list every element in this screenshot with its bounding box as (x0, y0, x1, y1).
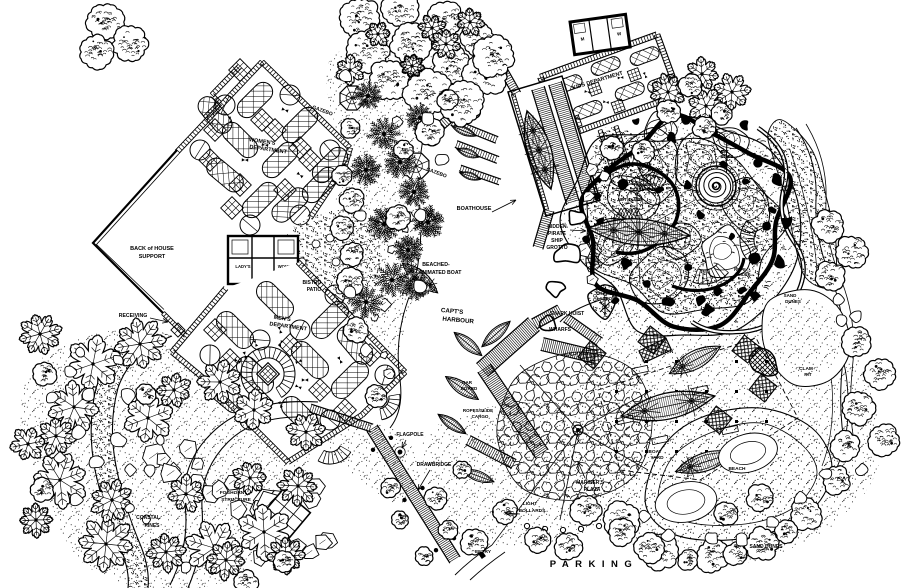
svg-text:PIRATE: PIRATE (548, 231, 567, 237)
svg-text:FOGHORN: FOGHORN (220, 490, 245, 496)
svg-text:PARKING: PARKING (550, 559, 639, 570)
svg-text:BACK of HOUSE: BACK of HOUSE (130, 246, 174, 252)
svg-text:PATIO: PATIO (307, 287, 322, 293)
svg-text:SAND: SAND (784, 293, 798, 298)
svg-text:PLAZA: PLAZA (584, 487, 601, 493)
svg-text:RECEIVING: RECEIVING (119, 313, 148, 319)
svg-text:MARINER'S: MARINER'S (576, 480, 605, 486)
svg-text:GROTTO: GROTTO (546, 245, 567, 251)
svg-text:PINES: PINES (144, 523, 160, 529)
svg-text:PIT: PIT (804, 372, 812, 378)
svg-text:SUPPORT: SUPPORT (139, 254, 166, 260)
svg-text:SLIDES: SLIDES (735, 272, 750, 277)
svg-text:NET CLIMB: NET CLIMB (618, 197, 643, 202)
svg-text:SLIDE: SLIDE (721, 154, 734, 159)
svg-text:BISTRO: BISTRO (303, 280, 322, 286)
svg-text:LADY'S: LADY'S (235, 264, 250, 269)
svg-text:CLAM: CLAM (799, 366, 813, 372)
svg-text:WHARFS: WHARFS (549, 327, 572, 333)
svg-text:LIGHT: LIGHT (523, 501, 537, 507)
svg-text:CAVE MAZE: CAVE MAZE (633, 187, 658, 192)
svg-text:SAND DUNES: SAND DUNES (749, 544, 783, 550)
svg-text:CARGO: CARGO (472, 414, 489, 419)
svg-text:HIDDEN: HIDDEN (547, 224, 567, 230)
svg-text:BOATHOUSE: BOATHOUSE (457, 206, 492, 212)
svg-text:BEACHED-: BEACHED- (422, 262, 450, 268)
svg-text:BOAT: BOAT (648, 449, 661, 455)
svg-text:BAR: BAR (663, 349, 674, 355)
svg-text:FLAGPOLE: FLAGPOLE (396, 432, 424, 438)
svg-text:ROPES/SLIDE: ROPES/SLIDE (463, 408, 493, 413)
svg-text:SHIP: SHIP (551, 238, 563, 244)
svg-text:STRUCTURE: STRUCTURE (221, 497, 251, 503)
svg-text:ANIMATED BOAT: ANIMATED BOAT (419, 270, 463, 276)
svg-text:YARD: YARD (650, 455, 664, 461)
svg-text:BOLLARDS: BOLLARDS (519, 508, 546, 514)
svg-text:ENTRY: ENTRY (475, 549, 492, 555)
svg-text:DRAWBRIDGE: DRAWBRIDGE (417, 462, 452, 468)
svg-text:DUNES: DUNES (785, 299, 801, 304)
svg-text:LAGOON: LAGOON (597, 296, 615, 301)
svg-text:SHARK HOIST: SHARK HOIST (550, 311, 584, 317)
svg-text:OAR: OAR (462, 380, 473, 385)
svg-text:COASTAL: COASTAL (136, 515, 160, 521)
svg-text:BOARD: BOARD (461, 386, 478, 391)
svg-text:BEACH: BEACH (728, 466, 746, 472)
